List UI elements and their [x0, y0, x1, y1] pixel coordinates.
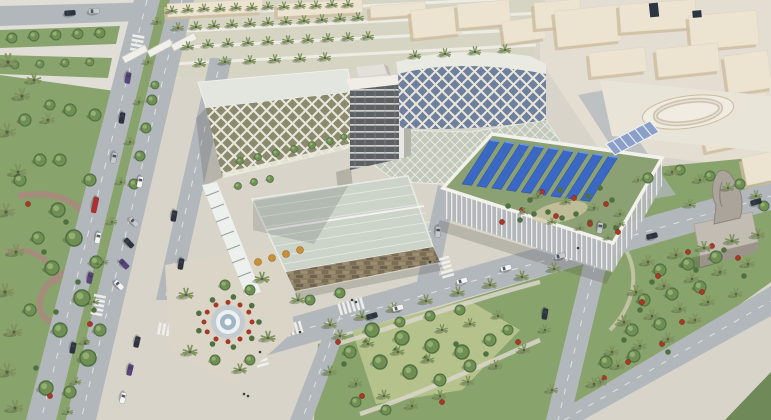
window-panel — [692, 10, 702, 18]
shrub — [453, 341, 459, 347]
planting-ring-dot — [249, 336, 255, 342]
shrub — [91, 307, 97, 313]
shrub — [557, 187, 563, 193]
orange-tree — [269, 255, 276, 262]
planting-ring-dot — [231, 344, 237, 350]
pedestrian — [243, 393, 246, 396]
red-flower-bush — [25, 201, 30, 206]
red-flower-bush — [571, 195, 576, 200]
planting-ring-dot — [246, 310, 251, 315]
red-flower-bush — [539, 189, 544, 194]
red-flower-bush — [359, 393, 364, 398]
shrub — [649, 279, 655, 285]
pedestrian — [429, 261, 432, 264]
shrub — [505, 203, 511, 209]
shrub — [33, 365, 39, 371]
shrub — [665, 349, 671, 355]
planting-ring-dot — [250, 320, 255, 325]
planting-ring-dot — [249, 303, 255, 309]
red-flower-bush — [335, 339, 340, 344]
pedestrian — [355, 301, 358, 304]
shrub — [721, 247, 727, 253]
planting-ring-dot — [214, 337, 219, 342]
red-flower-bush — [639, 299, 644, 304]
red-flower-bush — [685, 249, 690, 254]
red-flower-bush — [655, 273, 660, 278]
red-flower-bush — [587, 221, 592, 226]
shrub — [585, 193, 591, 199]
aerial-rendering-canvas — [0, 0, 771, 420]
shrub — [483, 351, 489, 357]
red-flower-bush — [499, 219, 504, 224]
planting-ring-dot — [256, 319, 262, 325]
shrub — [559, 215, 565, 221]
shrub — [517, 217, 523, 223]
orange-tree — [255, 259, 262, 266]
planting-ring-dot — [231, 294, 237, 300]
planting-ring-dot — [210, 297, 216, 303]
planting-ring-dot — [196, 311, 202, 317]
planting-ring-dot — [238, 302, 243, 307]
planting-ring-dot — [196, 328, 202, 334]
pedestrian — [351, 299, 354, 302]
planting-ring-dot — [226, 300, 231, 305]
shrub — [609, 197, 615, 203]
shrub — [693, 267, 699, 273]
red-flower-bush — [735, 255, 740, 260]
massing-block — [551, 5, 622, 51]
shrub — [637, 307, 643, 313]
red-flower-bush — [515, 339, 520, 344]
planting-ring-dot — [202, 320, 207, 325]
planting-ring-dot — [226, 339, 231, 344]
pedestrian — [259, 351, 262, 354]
red-flower-bush — [625, 359, 630, 364]
planting-ring-dot — [214, 302, 219, 307]
shrub — [545, 209, 551, 215]
orange-tree — [297, 247, 304, 254]
shrub — [573, 211, 579, 217]
pedestrian — [577, 247, 580, 250]
shrub — [53, 309, 59, 315]
orange-tree — [283, 251, 290, 258]
shrub — [75, 279, 81, 285]
red-flower-bush — [553, 213, 558, 218]
planting-ring-dot — [205, 329, 210, 334]
shrub — [621, 337, 627, 343]
shrub — [741, 273, 747, 279]
red-flower-bush — [47, 393, 52, 398]
red-flower-bush — [603, 201, 608, 206]
pedestrian — [247, 395, 250, 398]
red-flower-bush — [699, 289, 704, 294]
curved-diagrid-wing — [396, 52, 546, 129]
pedestrian — [299, 331, 302, 334]
aerial-rendering — [0, 0, 771, 420]
planting-ring-dot — [210, 341, 216, 347]
planting-ring-dot — [246, 329, 251, 334]
red-flower-bush — [679, 319, 684, 324]
shrub — [531, 211, 537, 217]
shrub — [341, 361, 347, 367]
window-panel — [649, 3, 659, 18]
massing-block — [720, 50, 771, 97]
red-flower-bush — [615, 229, 620, 234]
shrub — [41, 249, 47, 255]
massing-block — [407, 6, 461, 42]
planting-ring-dot — [205, 310, 210, 315]
shrub — [597, 185, 603, 191]
shrub — [63, 219, 69, 225]
red-flower-bush — [87, 321, 92, 326]
red-flower-bush — [439, 399, 444, 404]
planting-ring-dot — [238, 337, 243, 342]
